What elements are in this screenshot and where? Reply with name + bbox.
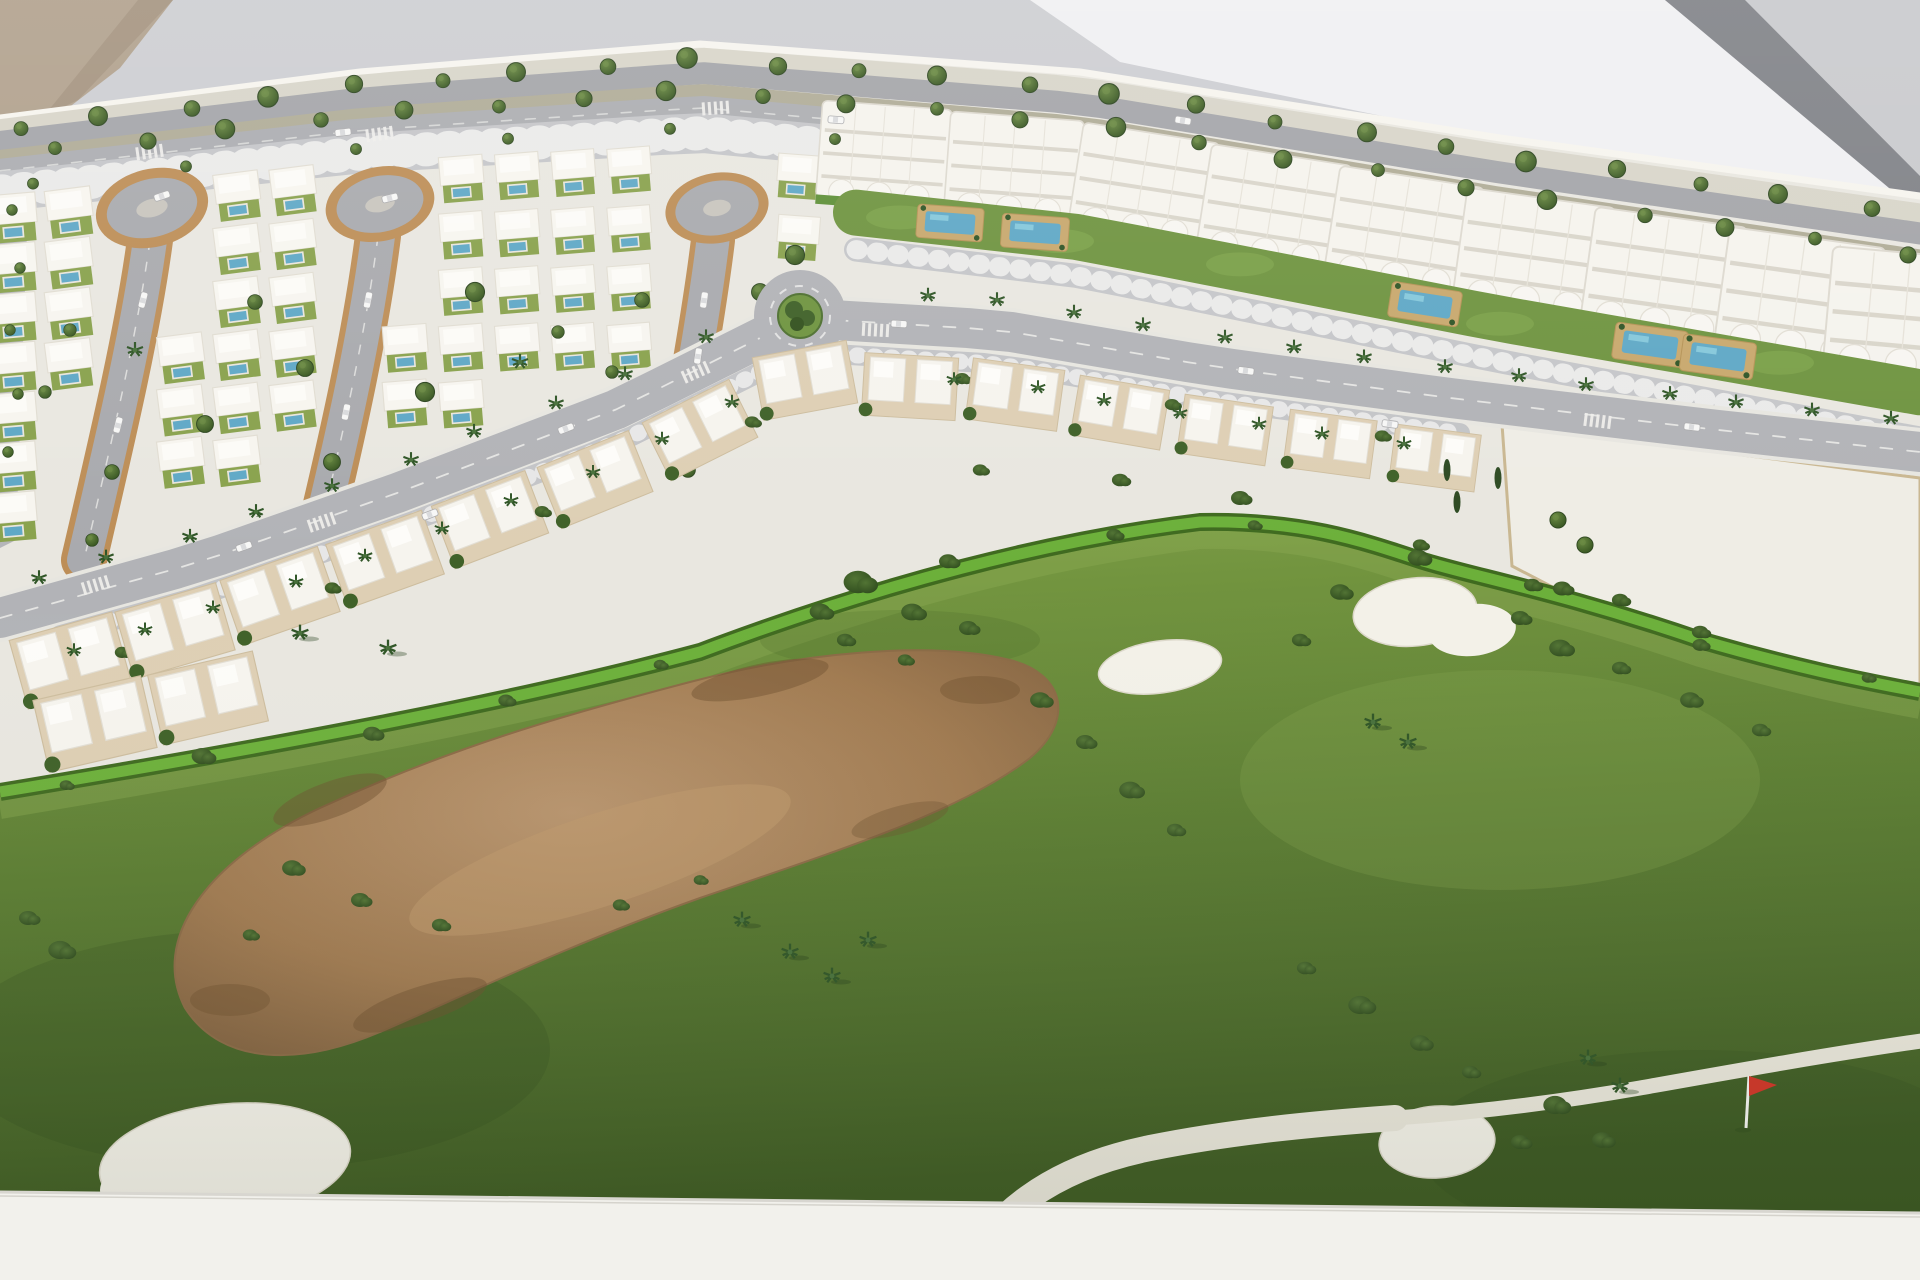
- photo-lighting: [0, 0, 1920, 1280]
- model-scene: [0, 0, 1920, 1280]
- architectural-model-photo: [0, 0, 1920, 1280]
